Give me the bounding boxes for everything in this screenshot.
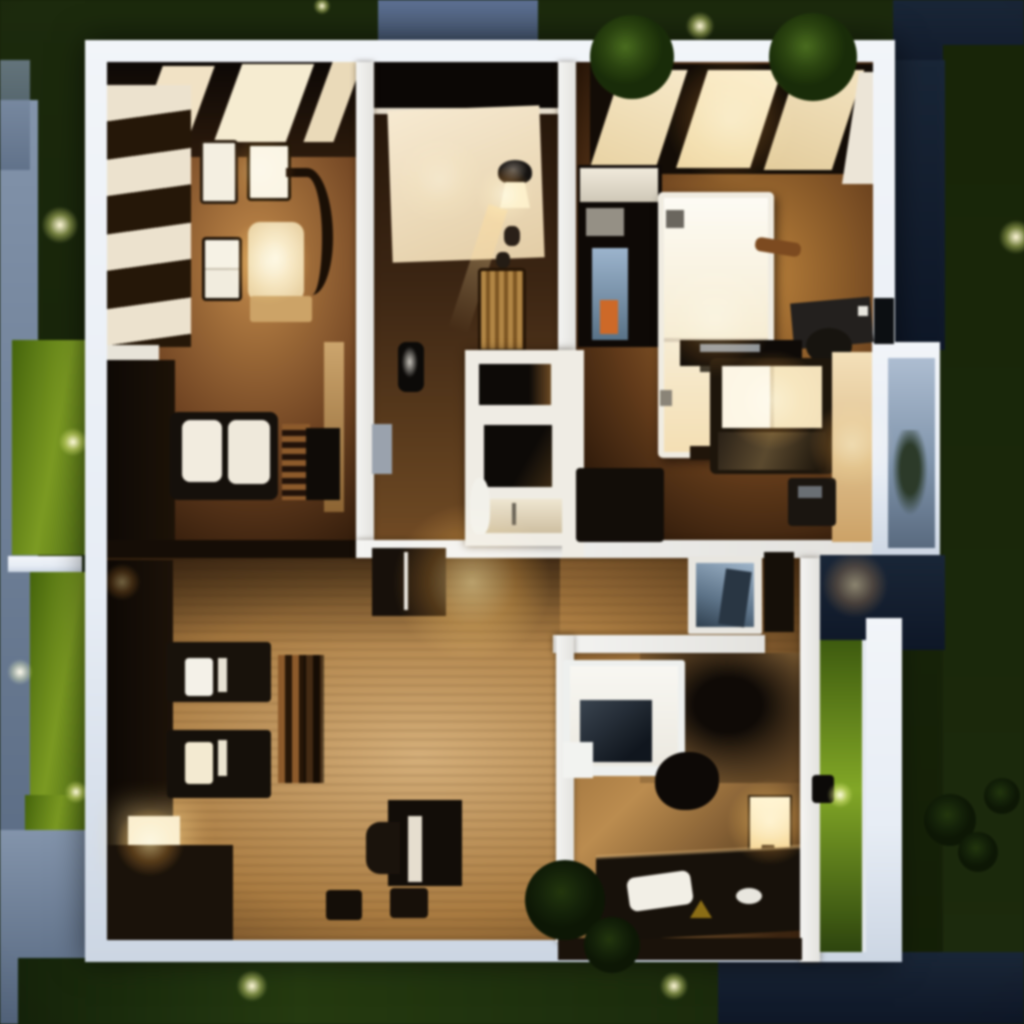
light-glow — [640, 30, 820, 210]
light-glow — [635, 240, 795, 400]
light-glow — [710, 762, 830, 882]
light-glow — [102, 794, 198, 890]
light-glow — [2, 654, 38, 690]
light-glow — [362, 472, 582, 692]
light-glow — [822, 777, 858, 813]
light-glow — [96, 556, 148, 608]
light-glow — [809, 539, 901, 631]
lights-layer — [0, 0, 1024, 1024]
light-glow — [230, 964, 274, 1008]
light-glow — [210, 120, 310, 220]
light-glow — [380, 120, 500, 240]
light-glow — [208, 202, 328, 322]
light-glow — [702, 330, 842, 470]
light-glow — [654, 966, 694, 1006]
light-glow — [60, 776, 92, 808]
light-glow — [992, 213, 1024, 261]
light-glow — [465, 155, 545, 235]
house-floorplan-render — [0, 0, 1024, 1024]
light-glow — [680, 6, 720, 46]
light-glow — [53, 422, 93, 462]
scene — [0, 0, 1024, 1024]
light-glow — [792, 385, 912, 505]
light-glow — [310, 0, 334, 18]
light-glow — [34, 199, 86, 251]
